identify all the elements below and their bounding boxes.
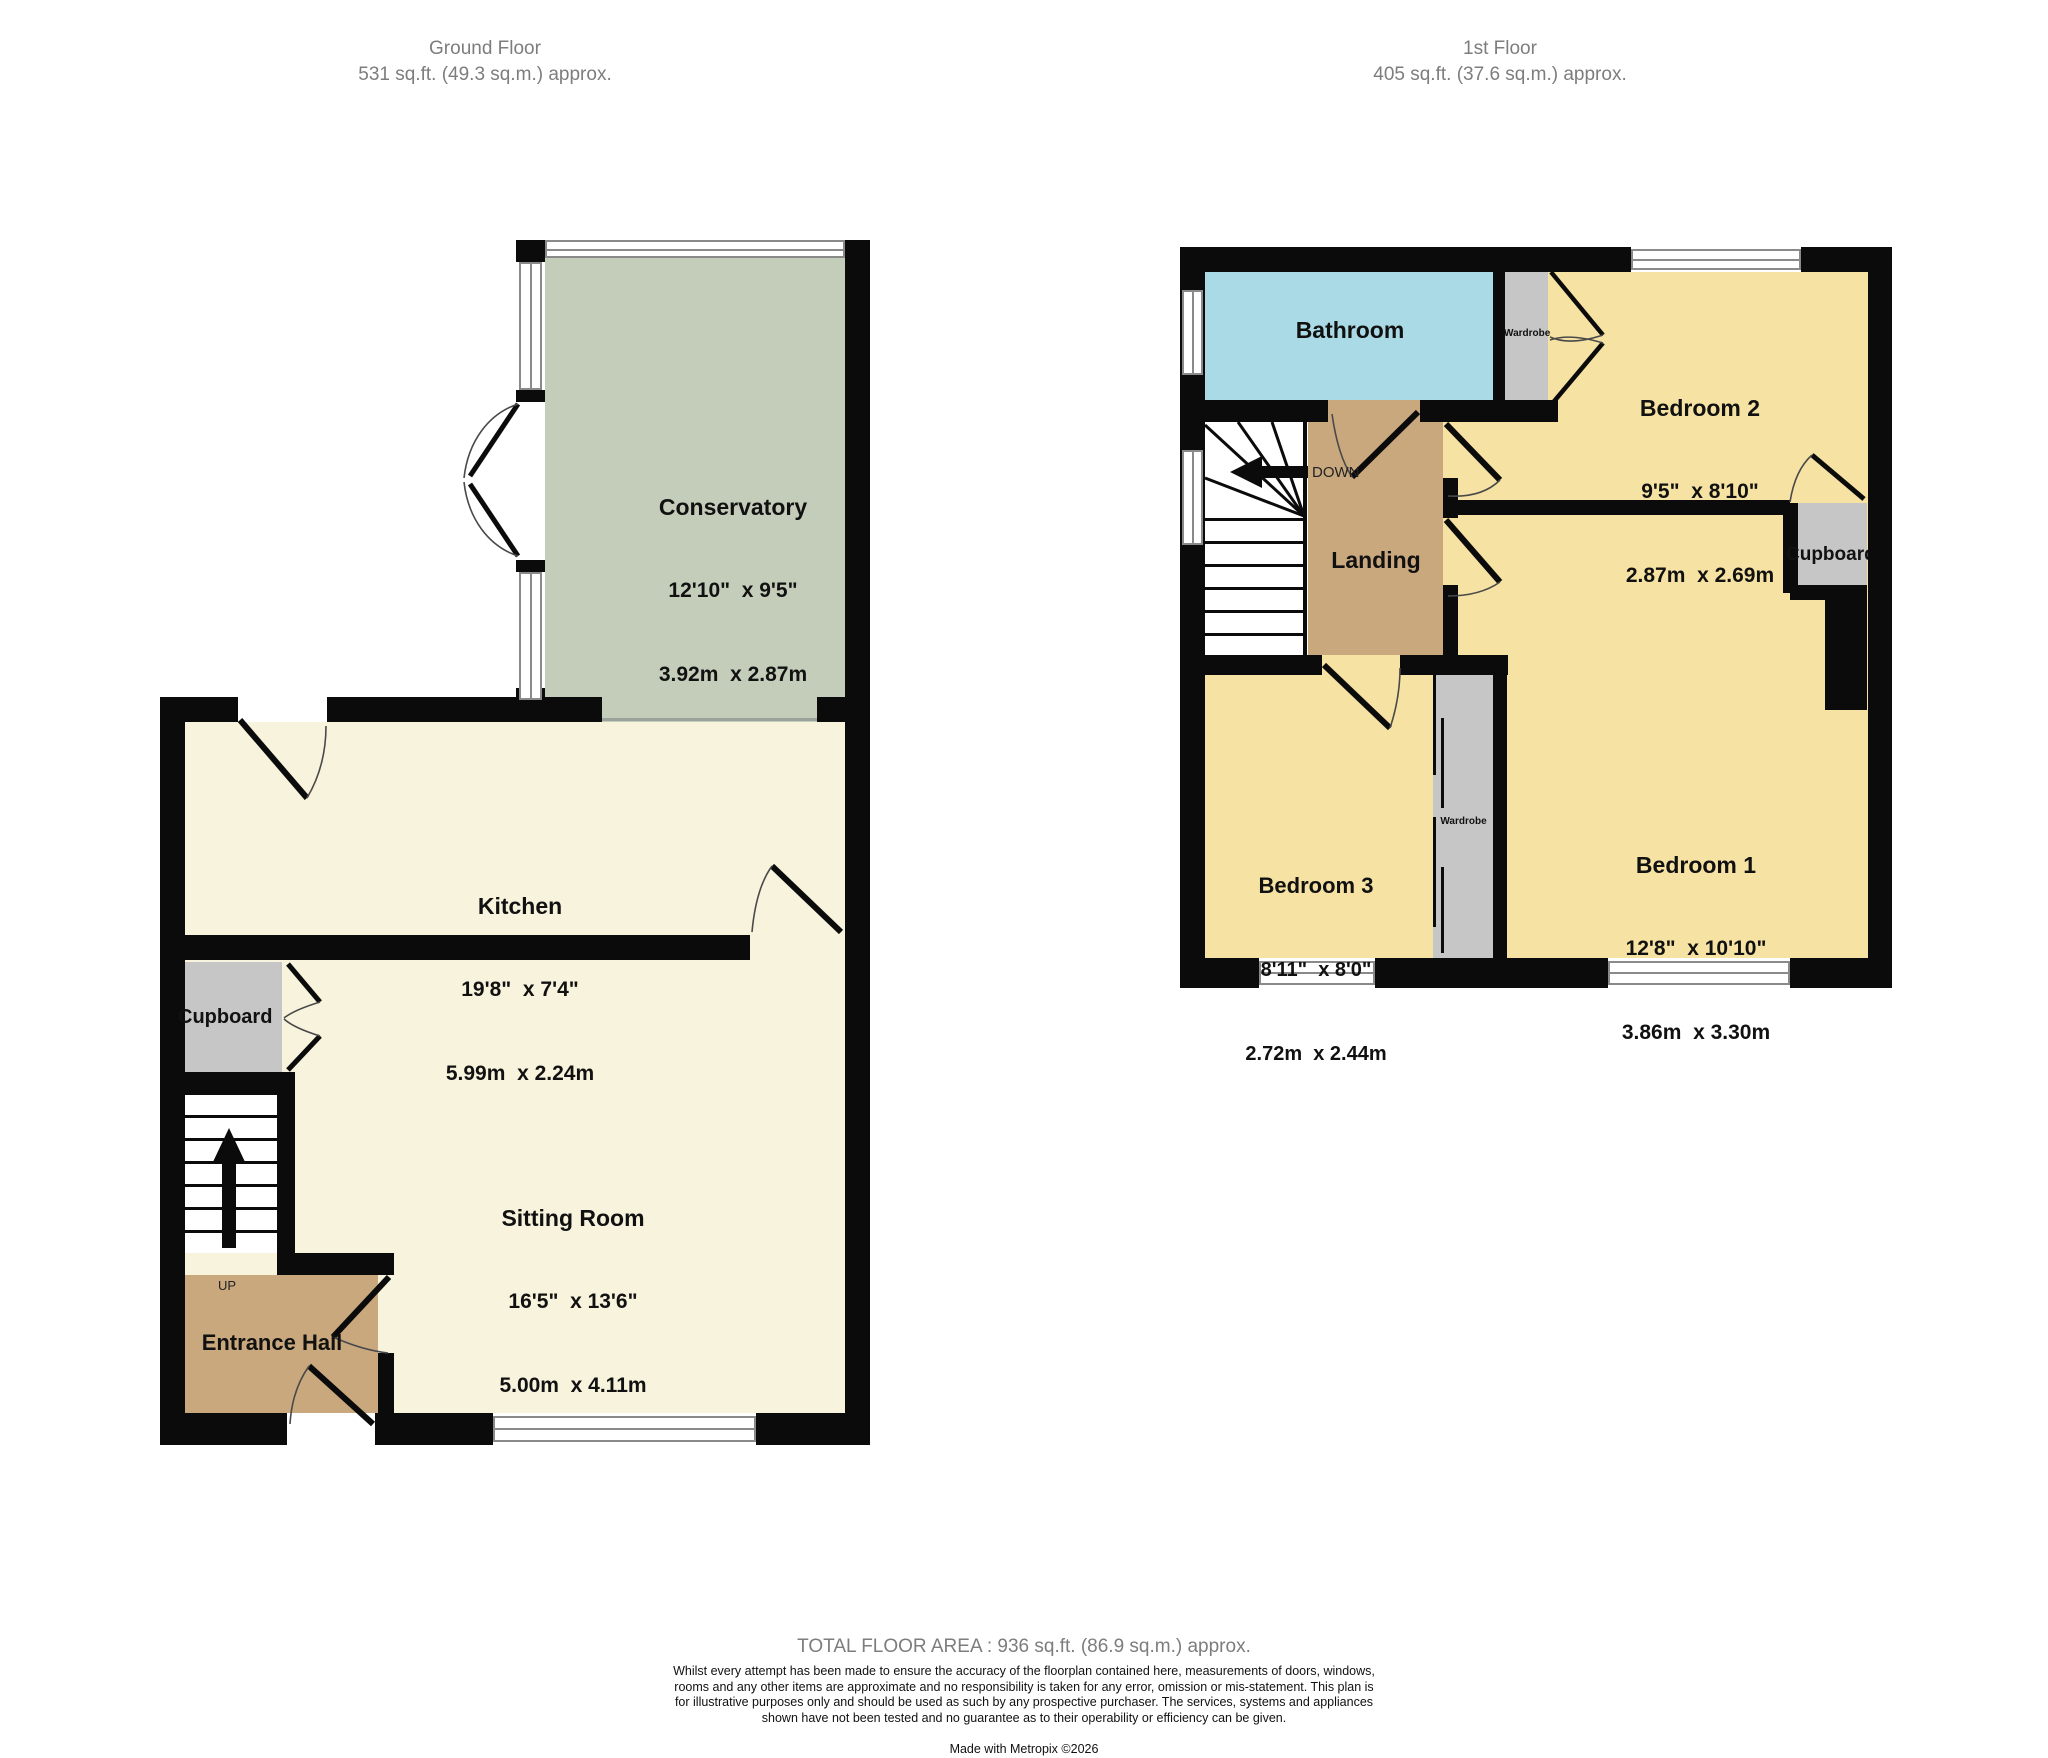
disclaimer-text: Whilst every attempt has been made to en… bbox=[667, 1664, 1381, 1726]
stairs-up-label: UP bbox=[218, 1278, 236, 1293]
bedroom3-door-leaf bbox=[1324, 665, 1390, 728]
kitchen-sitting-door-arc bbox=[752, 866, 772, 932]
kitchen-sitting-door-leaf bbox=[772, 866, 841, 932]
total-floor-area: TOTAL FLOOR AREA : 936 sq.ft. (86.9 sq.m… bbox=[0, 1636, 2048, 1658]
bedroom1-door-arc bbox=[1448, 582, 1500, 596]
room-label-gf-cupboard: Cupboard bbox=[178, 1006, 288, 1029]
wardrobe-bifold-1 bbox=[1551, 272, 1603, 335]
room-label-entrance-hall: Entrance Hall bbox=[152, 1330, 392, 1356]
gf-cupboard-bifold-1 bbox=[288, 964, 320, 1002]
bathroom-door-leaf bbox=[1352, 412, 1418, 477]
conservatory-door-leaf-1 bbox=[470, 404, 518, 476]
gf-cupboard-bifold-arc-2 bbox=[284, 1019, 320, 1036]
floorplan-canvas: Ground Floor 531 sq.ft. (49.3 sq.m.) app… bbox=[0, 0, 2048, 1758]
room-label-bedroom2: Bedroom 2 9'5" x 8'10" 2.87m x 2.69m bbox=[1520, 338, 1880, 646]
room-label-kitchen: Kitchen 19'8" x 7'4" 5.99m x 2.24m bbox=[340, 836, 700, 1144]
front-door-leaf bbox=[309, 1366, 373, 1424]
conservatory-door-leaf-2 bbox=[470, 484, 518, 556]
stairs-down-label: DOWN bbox=[1312, 464, 1360, 481]
gf-cupboard-bifold-arc-1 bbox=[284, 1002, 320, 1018]
bedroom2-door-arc bbox=[1448, 480, 1500, 496]
kitchen-back-door-leaf bbox=[240, 720, 307, 798]
bedroom2-door-leaf bbox=[1446, 424, 1500, 480]
room-label-bathroom: Bathroom bbox=[1270, 317, 1430, 344]
room-label-bedroom3: Bedroom 3 8'11" x 8'0" 2.72m x 2.44m bbox=[1136, 816, 1496, 1124]
room-label-landing: Landing bbox=[1296, 547, 1456, 574]
kitchen-back-door-arc bbox=[307, 726, 326, 798]
front-door-arc bbox=[290, 1366, 309, 1424]
room-label-sitting-room: Sitting Room 16'5" x 13'6" 5.00m x 4.11m bbox=[393, 1148, 753, 1456]
label-wardrobe-bottom: Wardrobe bbox=[1435, 816, 1492, 830]
room-label-ff-cupboard: Cupboard bbox=[1786, 544, 1868, 566]
metropix-credit: Made with Metropix ©2026 bbox=[0, 1742, 2048, 1756]
up-arrow bbox=[212, 1128, 246, 1248]
bedroom3-door-arc bbox=[1390, 668, 1400, 728]
gf-cupboard-bifold-2 bbox=[288, 1036, 320, 1070]
hall-sitting-door-leaf bbox=[333, 1277, 389, 1337]
room-label-bedroom1: Bedroom 1 12'8" x 10'10" 3.86m x 3.30m bbox=[1516, 795, 1876, 1103]
room-label-conservatory: Conservatory 12'10" x 9'5" 3.92m x 2.87m bbox=[553, 437, 913, 745]
